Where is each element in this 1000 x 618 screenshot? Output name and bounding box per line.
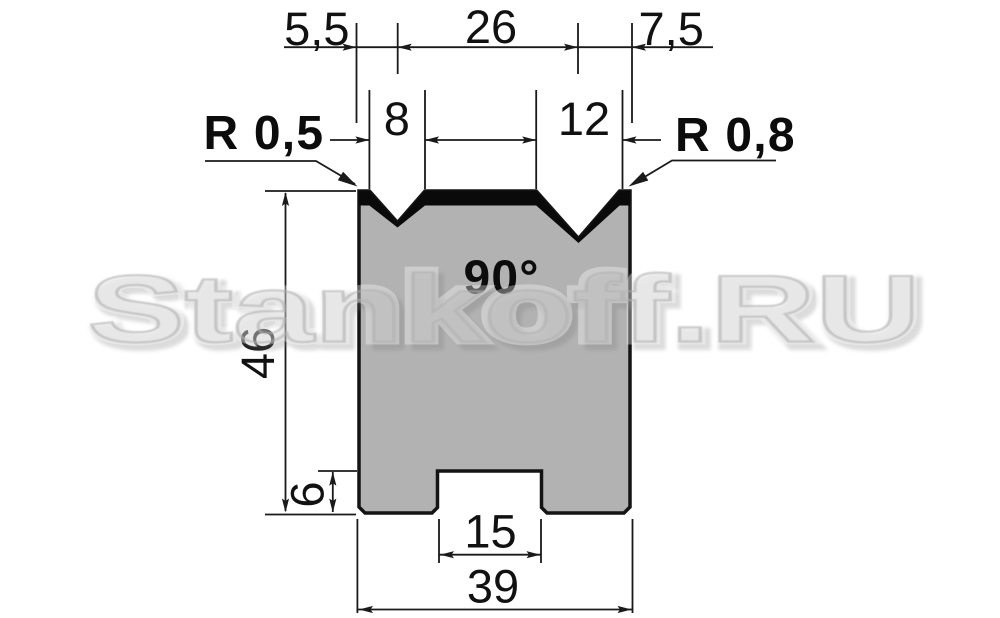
svg-text:6: 6	[281, 481, 334, 507]
svg-text:7,5: 7,5	[639, 2, 704, 55]
svg-text:R 0,5: R 0,5	[204, 107, 325, 160]
svg-text:Stankoff.RU: Stankoff.RU	[86, 255, 919, 361]
svg-text:8: 8	[384, 92, 410, 145]
svg-text:15: 15	[464, 505, 516, 558]
svg-text:R 0,8: R 0,8	[675, 109, 796, 162]
svg-text:39: 39	[467, 560, 519, 613]
svg-text:12: 12	[558, 92, 610, 145]
svg-text:26: 26	[465, 0, 517, 53]
svg-text:5,5: 5,5	[284, 2, 349, 55]
